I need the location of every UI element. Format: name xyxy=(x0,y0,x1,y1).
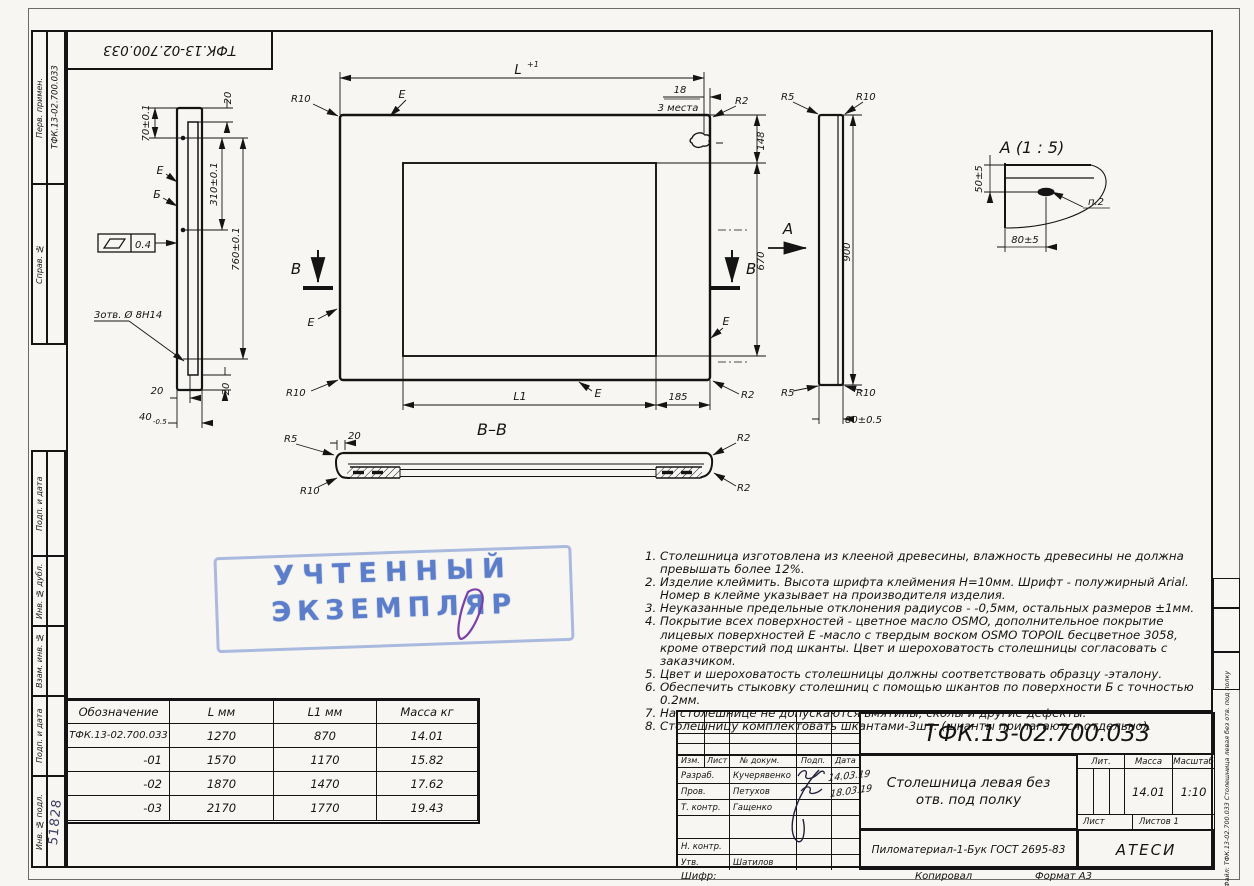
technical-notes: 1. Столешница изготовлена из клееной дре… xyxy=(645,550,1215,733)
grid-line xyxy=(46,452,48,866)
table-cell: -03 xyxy=(67,795,170,821)
right-margin-cell xyxy=(1213,578,1240,608)
table-cell: 1270 xyxy=(169,723,274,748)
note-1: 1. Столешница изготовлена из клееной дре… xyxy=(645,550,1215,576)
footer-copied: Копировал xyxy=(915,871,972,882)
file-name-label: Файл: ТФК.13-02.700.033 Столешница левая… xyxy=(1216,690,1238,868)
col-header-L: L мм xyxy=(169,700,274,724)
right-margin-cell xyxy=(1213,608,1240,652)
table-cell: 1570 xyxy=(169,747,274,772)
table-cell: 1470 xyxy=(273,771,377,796)
handwritten-date-2: 18.03.19 xyxy=(830,783,873,800)
accounting-copy-stamp: УЧТЕННЫЙ ЭКЗЕМПЛЯР xyxy=(213,545,574,653)
size-variants-table: Обозначение L мм L1 мм Масса кг ТФК.13-0… xyxy=(65,698,480,824)
table-cell: 15.82 xyxy=(376,747,478,772)
podp-data-label-1: Подп. и дата xyxy=(33,452,46,555)
note-6: 6. Обеспечить стыковку столешниц с помощ… xyxy=(645,681,1215,707)
table-cell: 2170 xyxy=(169,795,274,821)
col-header-L1: L1 мм xyxy=(273,700,377,724)
table-cell: 19.43 xyxy=(376,795,478,821)
drawing-sheet: 70±0.1 20 Е Б 0.4 3отв. Ø 8Н14 310±0.1 7… xyxy=(0,0,1254,886)
stamp-line-2: ЭКЗЕМПЛЯР xyxy=(218,587,571,630)
handwritten-mark xyxy=(448,578,492,650)
note-4: 4. Покрытие всех поверхностей - цветное … xyxy=(645,615,1215,667)
signature-razrab xyxy=(798,771,824,779)
note-5: 5. Цвет и шероховатость столешницы должн… xyxy=(645,668,1215,681)
sprav-no-label: Справ. № xyxy=(33,185,46,343)
left-margin-top-group: Перв. примен. ТФК.13-02.700.033 Справ. № xyxy=(31,30,66,345)
table-cell: -02 xyxy=(67,771,170,796)
handwritten-date-1: 14.03.19 xyxy=(828,769,871,784)
corner-stamp-number: ТФК.13-02.700.033 xyxy=(103,42,236,58)
vzam-inv-label: Взам. инв. № xyxy=(33,627,46,695)
footer-shifr: Шифр: xyxy=(681,871,716,882)
table-cell: -01 xyxy=(67,747,170,772)
col-header-designation: Обозначение xyxy=(67,700,170,724)
podp-data-label-2: Подп. и дата xyxy=(33,697,46,775)
table-cell: 870 xyxy=(273,723,377,748)
corner-stamp-box: ТФК.13-02.700.033 xyxy=(66,30,273,70)
perv-primen-label: Перв. примен. xyxy=(33,32,46,183)
table-cell: 17.62 xyxy=(376,771,478,796)
inv-dubl-label: Инв. № дубл. xyxy=(33,557,46,625)
footer-format: Формат А3 xyxy=(1035,871,1092,882)
perv-primen-value: ТФК.13-02.700.033 xyxy=(47,32,64,183)
stamp-line-1: УЧТЕННЫЙ xyxy=(217,551,570,594)
signatures-overlay: 14.03.19 18.03.19 xyxy=(676,710,1213,868)
note-2: 2. Изделие клеймить. Высота шрифта клейм… xyxy=(645,576,1215,602)
col-header-mass: Масса кг xyxy=(376,700,478,724)
table-cell: 14.01 xyxy=(376,723,478,748)
left-margin-bottom-group: Подп. и дата Инв. № дубл. Взам. инв. № П… xyxy=(31,450,66,868)
table-cell: 1770 xyxy=(273,795,377,821)
signature-flourish xyxy=(792,770,819,842)
table-cell: ТФК.13-02.700.033 xyxy=(67,723,170,748)
table-cell: 1870 xyxy=(169,771,274,796)
table-cell: 1170 xyxy=(273,747,377,772)
